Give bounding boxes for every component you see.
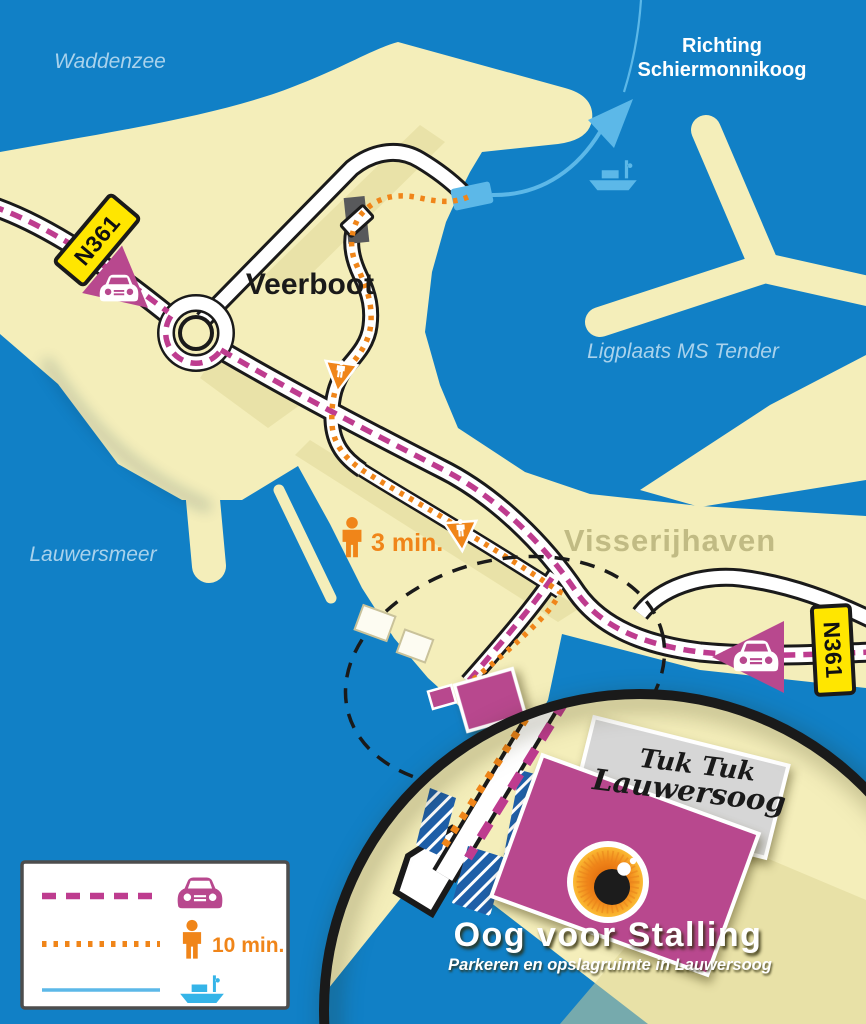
inset-title: Oog voor Stalling	[454, 916, 763, 954]
label-richting-line1: Richting	[682, 35, 762, 57]
label-ligplaats: Ligplaats MS Tender	[587, 340, 780, 363]
legend-box: 10 min.	[22, 862, 288, 1008]
svg-text:N361: N361	[819, 621, 848, 679]
inset-subtitle: Parkeren en opslagruimte in Lauwersoog	[448, 956, 772, 974]
land-pier-small	[200, 467, 209, 566]
label-richting-line2: Schiermonnikoog	[638, 59, 807, 81]
legend-walk-duration: 10 min.	[212, 934, 284, 957]
eye-logo	[567, 841, 649, 923]
label-visserijhaven: Visserijhaven	[564, 523, 776, 558]
lauwersoog-map: Waddenzee Lauwersmeer Ligplaats MS Tende…	[0, 0, 866, 1024]
n361-sign-east: N361	[812, 605, 855, 695]
label-lauwersmeer: Lauwersmeer	[29, 543, 157, 566]
label-waddenzee: Waddenzee	[54, 50, 166, 73]
label-veerboot: Veerboot	[246, 268, 374, 301]
svg-text:3 min.: 3 min.	[371, 529, 443, 557]
map-stage: Waddenzee Lauwersmeer Ligplaats MS Tende…	[0, 0, 866, 1024]
